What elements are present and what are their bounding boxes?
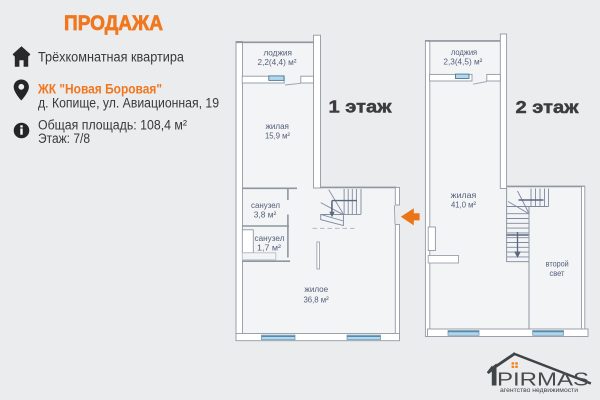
svg-text:Этаж: 7/8: Этаж: 7/8: [38, 131, 90, 146]
svg-text:ЖК "Новая Боровая": ЖК "Новая Боровая": [37, 82, 162, 97]
svg-text:2,2(4,4) м²: 2,2(4,4) м²: [258, 57, 297, 67]
svg-text:жилая: жилая: [451, 190, 477, 200]
svg-text:15,9 м²: 15,9 м²: [265, 131, 290, 141]
svg-text:36,8 м²: 36,8 м²: [303, 294, 328, 304]
svg-text:свет: свет: [550, 268, 565, 278]
svg-text:1,7 м²: 1,7 м²: [257, 242, 281, 252]
svg-text:жилая: жилая: [265, 121, 289, 131]
svg-text:жилое: жилое: [304, 284, 328, 294]
svg-text:агентство недвижимости: агентство недвижимости: [500, 387, 578, 394]
svg-text:2 этаж: 2 этаж: [516, 97, 580, 117]
svg-text:Трёхкомнатная квартира: Трёхкомнатная квартира: [38, 50, 184, 65]
svg-text:ПРОДАЖА: ПРОДАЖА: [64, 12, 163, 35]
svg-text:д. Копище, ул. Авиационная, 19: д. Копище, ул. Авиационная, 19: [38, 96, 219, 111]
svg-text:2,3(4,5) м²: 2,3(4,5) м²: [443, 56, 482, 66]
svg-text:3,8 м²: 3,8 м²: [254, 209, 277, 219]
svg-text:1 этаж: 1 этаж: [329, 97, 393, 117]
svg-text:41,0 м²: 41,0 м²: [451, 200, 476, 210]
